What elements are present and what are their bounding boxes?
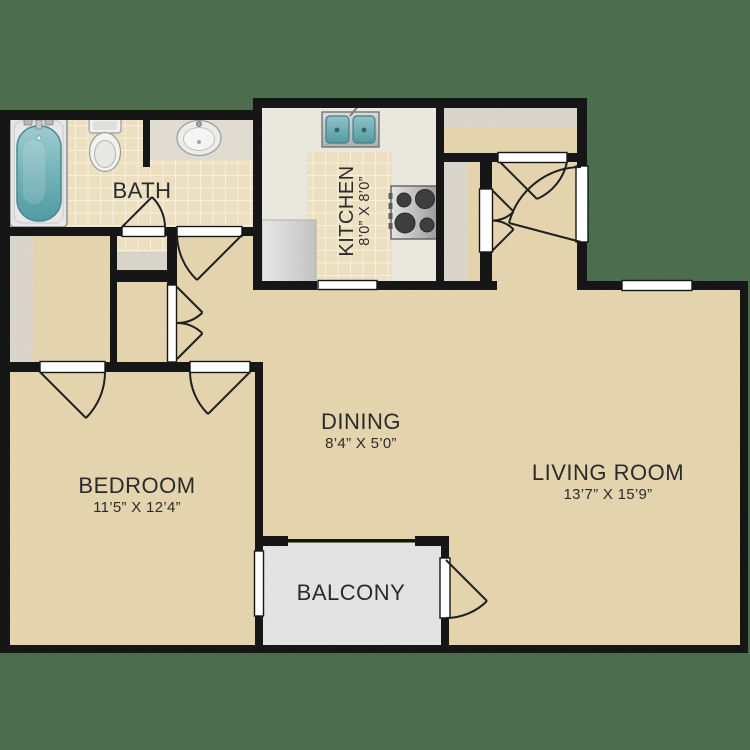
living-room-dimensions: 13’7” X 15’9”: [564, 486, 653, 503]
wall-right-exterior: [740, 281, 748, 653]
floorplan-page: BATH KITCHEN 8’0” X 8’0” DINING 8’4” X 5…: [0, 0, 750, 750]
kitchen-dimensions: 8’0” X 8’0”: [357, 176, 373, 245]
living-room-window: [622, 281, 692, 291]
bedroom-closet-door-opening: [40, 362, 105, 373]
bedroom-label: BEDROOM: [78, 473, 195, 498]
kitchen-threshold: [318, 281, 377, 290]
hall-bath-opening: [177, 227, 242, 237]
dining-dimensions: 8’4” X 5’0”: [325, 435, 397, 452]
wall-closet-left-divider: [110, 235, 117, 372]
middle-closet-door-opening: [168, 285, 177, 362]
wall-kitchen-right: [436, 98, 444, 283]
bedroom-balcony-window: [255, 551, 264, 616]
pantry-door-opening: [480, 189, 493, 252]
bedroom-door-opening: [190, 362, 250, 373]
floorplan-canvas: BATH KITCHEN 8’0” X 8’0” DINING 8’4” X 5…: [0, 0, 750, 750]
dining-label: DINING: [321, 409, 401, 434]
living-room-label: LIVING ROOM: [532, 460, 684, 485]
entry-closet-door-opening: [498, 153, 567, 163]
wall-balcony-corner-left: [262, 536, 288, 546]
front-door-opening: [576, 166, 588, 242]
kitchen-label: KITCHEN: [336, 165, 358, 256]
wall-bath-divider: [143, 115, 150, 167]
wall-kitchen-bottom-right: [377, 281, 497, 290]
wall-closet-middle-top: [110, 270, 177, 282]
wall-kitchen-entry-top: [253, 98, 587, 108]
bath-door-opening: [122, 227, 165, 237]
wall-kitchen-bottom-left: [253, 281, 317, 290]
wall-bath-top: [0, 110, 261, 120]
balcony-label: BALCONY: [297, 580, 406, 605]
wall-kitchen-left: [253, 98, 262, 290]
balcony-door-opening: [440, 558, 450, 618]
balcony-slider-line: [288, 539, 415, 543]
bedroom-dimensions: 11’5” X 12’4”: [93, 499, 181, 516]
wall-left-exterior: [0, 110, 10, 653]
wall-bottom-exterior: [0, 645, 748, 653]
bath-label: BATH: [112, 178, 171, 203]
